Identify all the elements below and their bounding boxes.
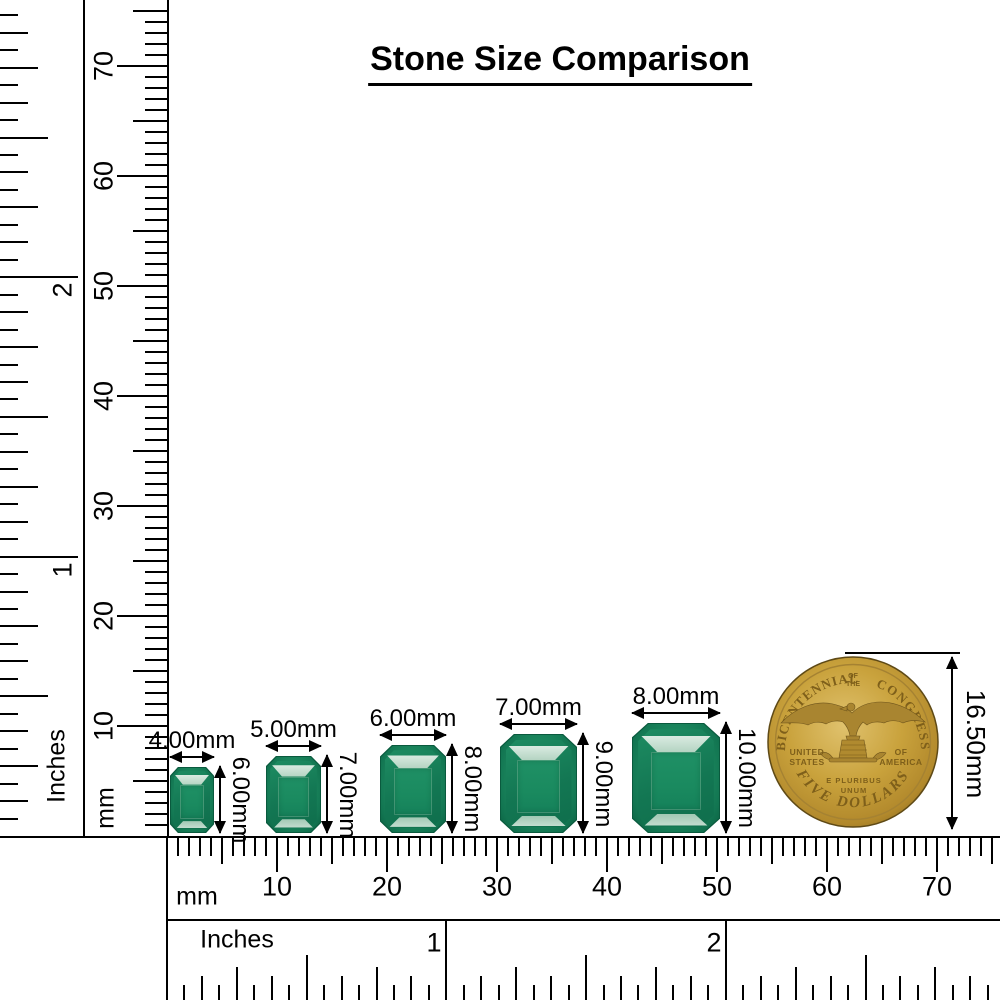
ruler-tick	[672, 838, 674, 856]
ruler-tick	[288, 985, 290, 1000]
coin-text-united: UNITED	[790, 747, 825, 757]
ruler-tick	[145, 219, 167, 221]
ruler-tick	[276, 838, 278, 872]
ruler-tick	[145, 626, 167, 628]
ruler-tick	[287, 838, 289, 856]
coin-face: BICENTENNIAL CONGRESS OF THE UNITED STAT…	[767, 656, 939, 828]
ruler-tick	[0, 608, 18, 610]
ruler-tick	[550, 976, 552, 1000]
ruler-tick	[253, 985, 255, 1000]
arrow-up-icon	[946, 656, 958, 669]
gemstone	[500, 734, 577, 833]
ruler-tick	[584, 838, 586, 856]
ruler-number: 60	[812, 874, 842, 901]
ruler-tick	[145, 109, 167, 111]
ruler-tick	[0, 189, 18, 191]
ruler-tick	[133, 670, 167, 672]
ruler-number: 30	[482, 874, 512, 901]
ruler-border	[166, 919, 1000, 921]
ruler-tick	[376, 967, 378, 1000]
arrow-up-icon	[214, 765, 226, 778]
ruler-tick	[452, 838, 454, 856]
ruler-tick	[0, 713, 18, 715]
ruler-tick	[815, 838, 817, 856]
ruler-tick	[145, 648, 167, 650]
ruler-tick	[410, 976, 412, 1000]
ruler-tick	[0, 451, 28, 453]
gemstone	[380, 745, 446, 833]
ruler-tick	[0, 730, 28, 732]
ruler-tick	[0, 276, 78, 278]
ruler-tick	[0, 486, 38, 488]
ruler-tick	[0, 206, 38, 208]
page-title: Stone Size Comparison	[368, 40, 752, 86]
ruler-tick	[199, 838, 201, 856]
ruler-tick	[145, 428, 167, 430]
ruler-tick	[386, 838, 388, 872]
ruler-tick	[0, 765, 38, 767]
ruler-tick	[969, 838, 971, 856]
ruler-tick	[837, 838, 839, 856]
ruler-tick	[760, 838, 762, 856]
stone-width-arrow	[500, 723, 577, 725]
ruler-tick	[145, 604, 167, 606]
ruler-tick	[690, 976, 692, 1000]
stone-height-arrow	[451, 744, 453, 833]
stone-height-label: 7.00mm	[335, 751, 359, 838]
ruler-tick	[145, 32, 167, 34]
ruler-unit-label: Inches	[200, 928, 274, 953]
gemstone-table-facet	[394, 768, 431, 814]
ruler-tick	[236, 967, 238, 1000]
ruler-tick	[672, 985, 674, 1000]
gemstone-outline	[632, 723, 720, 833]
ruler-tick	[0, 591, 28, 593]
ruler-tick	[782, 838, 784, 856]
ruler-tick	[812, 985, 814, 1000]
ruler-tick	[145, 527, 167, 529]
ruler-tick	[145, 87, 167, 89]
ruler-number: 40	[91, 381, 118, 411]
gemstone-body	[267, 757, 320, 832]
ruler-tick	[0, 433, 18, 435]
ruler-number: 70	[922, 874, 952, 901]
ruler-tick	[201, 976, 203, 1000]
coin-text-of: OF	[848, 673, 858, 680]
ruler-tick	[707, 985, 709, 1000]
ruler-number: 20	[372, 874, 402, 901]
stone-width-arrow	[266, 745, 321, 747]
ruler-number: 70	[91, 51, 118, 81]
ruler-tick	[0, 800, 28, 802]
ruler-tick	[0, 783, 18, 785]
ruler-tick	[441, 838, 443, 864]
stone-height-arrow	[219, 766, 221, 833]
coin-text-the: THE	[846, 681, 860, 688]
ruler-tick	[145, 296, 167, 298]
ruler-tick	[804, 838, 806, 856]
coin-text-states: STATES	[789, 757, 824, 767]
stone-width-label: 8.00mm	[633, 685, 720, 709]
ruler-number: 1	[50, 562, 77, 577]
ruler-tick	[952, 985, 954, 1000]
ruler-tick	[498, 985, 500, 1000]
ruler-tick	[306, 955, 308, 1000]
ruler-border	[167, 0, 169, 838]
ruler-tick	[0, 556, 78, 558]
ruler-border	[0, 836, 1000, 838]
ruler-tick	[145, 406, 167, 408]
ruler-tick	[694, 838, 696, 856]
ruler-tick	[145, 307, 167, 309]
ruler-tick	[323, 985, 325, 1000]
ruler-tick	[341, 976, 343, 1000]
ruler-number: 50	[702, 874, 732, 901]
ruler-number: 20	[91, 601, 118, 631]
gemstone	[170, 767, 214, 833]
ruler-tick	[0, 259, 18, 261]
ruler-tick	[0, 695, 48, 697]
stone-height-label: 8.00mm	[460, 746, 484, 833]
ruler-tick	[969, 976, 971, 1000]
ruler-tick	[826, 838, 828, 872]
stone-size-comparison-diagram: Stone Size Comparison BICENTENNIAL CONGR…	[0, 0, 1000, 1000]
ruler-tick	[655, 967, 657, 1000]
ruler-tick	[0, 748, 18, 750]
ruler-tick	[145, 329, 167, 331]
ruler-tick	[117, 395, 167, 397]
ruler-tick	[271, 976, 273, 1000]
ruler-tick	[474, 838, 476, 856]
stone-width-arrow	[380, 734, 446, 736]
ruler-tick	[177, 838, 179, 856]
stone-width-arrow	[632, 712, 720, 714]
ruler-tick	[947, 838, 949, 856]
ruler-unit-label: Inches	[45, 729, 70, 803]
gold-coin: BICENTENNIAL CONGRESS OF THE UNITED STAT…	[767, 656, 939, 828]
arrow-up-icon	[720, 721, 732, 734]
ruler-tick	[958, 838, 960, 856]
stone-height-arrow	[326, 755, 328, 833]
ruler-tick	[145, 714, 167, 716]
ruler-tick	[903, 838, 905, 856]
ruler-tick	[210, 838, 212, 856]
ruler-tick	[892, 838, 894, 856]
ruler-tick	[145, 153, 167, 155]
ruler-number: 2	[706, 930, 721, 957]
ruler-tick	[0, 346, 38, 348]
ruler-number: 10	[91, 711, 118, 741]
coin-dimension-cap-line	[845, 652, 960, 654]
ruler-tick	[221, 838, 223, 864]
ruler-tick	[364, 838, 366, 856]
ruler-tick	[145, 824, 167, 826]
arrow-down-icon	[446, 821, 458, 834]
ruler-number: 1	[426, 930, 441, 957]
ruler-tick	[145, 98, 167, 100]
ruler-tick	[585, 955, 587, 1000]
stone-height-arrow	[725, 722, 727, 833]
ruler-tick	[145, 692, 167, 694]
ruler-tick	[606, 838, 608, 872]
ruler-tick	[117, 65, 167, 67]
ruler-tick	[145, 494, 167, 496]
ruler-tick	[145, 472, 167, 474]
ruler-tick	[568, 985, 570, 1000]
ruler-tick	[0, 625, 38, 627]
ruler-tick	[515, 967, 517, 1000]
ruler-tick	[145, 571, 167, 573]
ruler-number: 30	[91, 491, 118, 521]
ruler-tick	[595, 838, 597, 856]
ruler-number: 10	[262, 874, 292, 901]
ruler-tick	[145, 758, 167, 760]
ruler-tick	[847, 985, 849, 1000]
ruler-tick	[0, 503, 18, 505]
ruler-tick	[661, 838, 663, 864]
ruler-tick	[628, 838, 630, 856]
stone-width-arrow	[170, 756, 214, 758]
ruler-tick	[0, 818, 18, 820]
ruler-tick	[507, 838, 509, 856]
ruler-tick	[358, 985, 360, 1000]
coin-text-of-2: OF	[895, 747, 908, 757]
ruler-tick	[0, 49, 18, 51]
ruler-tick	[298, 838, 300, 856]
ruler-tick	[551, 838, 553, 864]
ruler-tick	[848, 838, 850, 856]
ruler-tick	[145, 659, 167, 661]
ruler-tick	[925, 838, 927, 856]
ruler-tick	[145, 516, 167, 518]
ruler-tick	[0, 311, 28, 313]
ruler-tick	[0, 119, 18, 121]
ruler-tick	[991, 838, 993, 864]
gemstone-body	[633, 724, 719, 832]
gemstone-table-facet	[180, 785, 204, 820]
ruler-tick	[738, 838, 740, 856]
gemstone-outline	[266, 756, 321, 833]
ruler-tick	[496, 838, 498, 872]
ruler-tick	[518, 838, 520, 856]
ruler-tick	[133, 340, 167, 342]
gemstone-body	[171, 768, 213, 832]
ruler-tick	[145, 208, 167, 210]
ruler-tick	[0, 678, 18, 680]
ruler-tick	[573, 838, 575, 856]
ruler-tick	[0, 538, 18, 540]
ruler-tick	[795, 967, 797, 1000]
ruler-tick	[0, 364, 18, 366]
ruler-tick	[145, 769, 167, 771]
ruler-tick	[145, 593, 167, 595]
ruler-tick	[0, 154, 18, 156]
ruler-tick	[725, 920, 727, 1000]
ruler-tick	[0, 102, 28, 104]
coin-height-arrow	[951, 657, 953, 829]
ruler-tick	[145, 791, 167, 793]
ruler-number: 60	[91, 161, 118, 191]
ruler-tick	[254, 838, 256, 856]
gemstone-table-facet	[651, 752, 701, 810]
ruler-tick	[408, 838, 410, 856]
ruler-tick	[882, 985, 884, 1000]
ruler-tick	[375, 838, 377, 856]
ruler-tick	[865, 955, 867, 1000]
ruler-tick	[0, 241, 28, 243]
ruler-tick	[133, 10, 167, 12]
ruler-tick	[777, 985, 779, 1000]
arrow-down-icon	[720, 821, 732, 834]
gemstone-table-facet	[278, 777, 309, 818]
ruler-tick	[145, 461, 167, 463]
ruler-tick	[0, 643, 18, 645]
ruler-tick	[603, 985, 605, 1000]
ruler-tick	[145, 802, 167, 804]
gemstone-outline	[500, 734, 577, 833]
arrow-down-icon	[577, 821, 589, 834]
ruler-tick	[0, 14, 18, 16]
ruler-tick	[331, 838, 333, 864]
ruler-tick	[620, 976, 622, 1000]
ruler-tick	[145, 637, 167, 639]
stone-height-label: 9.00mm	[591, 740, 615, 827]
ruler-tick	[0, 294, 18, 296]
ruler-unit-label: mm	[94, 787, 119, 829]
ruler-tick	[183, 985, 185, 1000]
ruler-tick	[145, 164, 167, 166]
arrow-up-icon	[321, 754, 333, 767]
ruler-border	[166, 836, 168, 1000]
ruler-tick	[0, 416, 48, 418]
ruler-tick	[987, 985, 989, 1000]
ruler-tick	[133, 780, 167, 782]
ruler-tick	[117, 285, 167, 287]
ruler-tick	[881, 838, 883, 864]
ruler-tick	[145, 417, 167, 419]
ruler-tick	[145, 362, 167, 364]
gemstone	[266, 756, 321, 833]
ruler-tick	[145, 54, 167, 56]
ruler-tick	[529, 838, 531, 856]
ruler-tick	[793, 838, 795, 856]
ruler-tick	[145, 197, 167, 199]
ruler-tick	[617, 838, 619, 856]
ruler-tick	[145, 439, 167, 441]
ruler-tick	[265, 838, 267, 856]
ruler-tick	[705, 838, 707, 856]
arrow-up-icon	[577, 732, 589, 745]
ruler-tick	[342, 838, 344, 856]
ruler-tick	[145, 351, 167, 353]
ruler-tick	[133, 120, 167, 122]
coin-text-unum: UNUM	[841, 786, 868, 795]
arrow-down-icon	[946, 817, 958, 830]
ruler-tick	[639, 838, 641, 856]
ruler-tick	[637, 985, 639, 1000]
ruler-tick	[480, 976, 482, 1000]
ruler-tick	[0, 573, 18, 575]
ruler-tick	[650, 838, 652, 856]
ruler-tick	[830, 976, 832, 1000]
ruler-tick	[771, 838, 773, 864]
stone-height-label: 6.00mm	[228, 757, 252, 844]
stone-height-label: 10.00mm	[734, 728, 758, 828]
ruler-tick	[0, 381, 28, 383]
stone-height-arrow	[582, 733, 584, 833]
ruler-tick	[133, 560, 167, 562]
stone-width-label: 6.00mm	[370, 707, 457, 731]
ruler-tick	[0, 521, 28, 523]
ruler-tick	[145, 274, 167, 276]
ruler-tick	[145, 384, 167, 386]
ruler-tick	[145, 186, 167, 188]
arrow-down-icon	[214, 821, 226, 834]
ruler-tick	[145, 813, 167, 815]
ruler-tick	[683, 838, 685, 856]
ruler-tick	[0, 67, 38, 69]
ruler-tick	[145, 318, 167, 320]
ruler-tick	[430, 838, 432, 856]
ruler-tick	[917, 985, 919, 1000]
ruler-tick	[914, 838, 916, 856]
ruler-tick	[145, 681, 167, 683]
ruler-border	[83, 0, 85, 838]
ruler-tick	[419, 838, 421, 856]
ruler-tick	[0, 660, 28, 662]
ruler-tick	[117, 175, 167, 177]
ruler-tick	[145, 21, 167, 23]
ruler-tick	[899, 976, 901, 1000]
ruler-tick	[540, 838, 542, 856]
ruler-tick	[742, 985, 744, 1000]
ruler-tick	[117, 505, 167, 507]
ruler-tick	[870, 838, 872, 856]
ruler-number: 50	[91, 271, 118, 301]
ruler-tick	[320, 838, 322, 856]
gemstone-outline	[380, 745, 446, 833]
arrow-up-icon	[446, 743, 458, 756]
ruler-tick	[0, 468, 18, 470]
ruler-tick	[117, 615, 167, 617]
ruler-tick	[0, 329, 18, 331]
ruler-tick	[145, 131, 167, 133]
ruler-tick	[145, 142, 167, 144]
ruler-tick	[145, 538, 167, 540]
ruler-tick	[188, 838, 190, 856]
ruler-tick	[353, 838, 355, 856]
gemstone-body	[501, 735, 576, 832]
ruler-tick	[133, 230, 167, 232]
stone-width-label: 5.00mm	[250, 718, 337, 742]
ruler-tick	[463, 985, 465, 1000]
arrow-down-icon	[321, 821, 333, 834]
ruler-tick	[428, 985, 430, 1000]
ruler-tick	[0, 32, 28, 34]
ruler-tick	[727, 838, 729, 856]
ruler-number: 2	[50, 282, 77, 297]
ruler-tick	[0, 137, 48, 139]
gemstone	[632, 723, 720, 833]
gemstone-body	[381, 746, 445, 832]
ruler-tick	[145, 76, 167, 78]
ruler-tick	[934, 967, 936, 1000]
coin-height-label: 16.50mm	[963, 690, 989, 798]
ruler-tick	[145, 703, 167, 705]
ruler-tick	[218, 985, 220, 1000]
ruler-tick	[145, 373, 167, 375]
gemstone-table-facet	[517, 760, 561, 812]
